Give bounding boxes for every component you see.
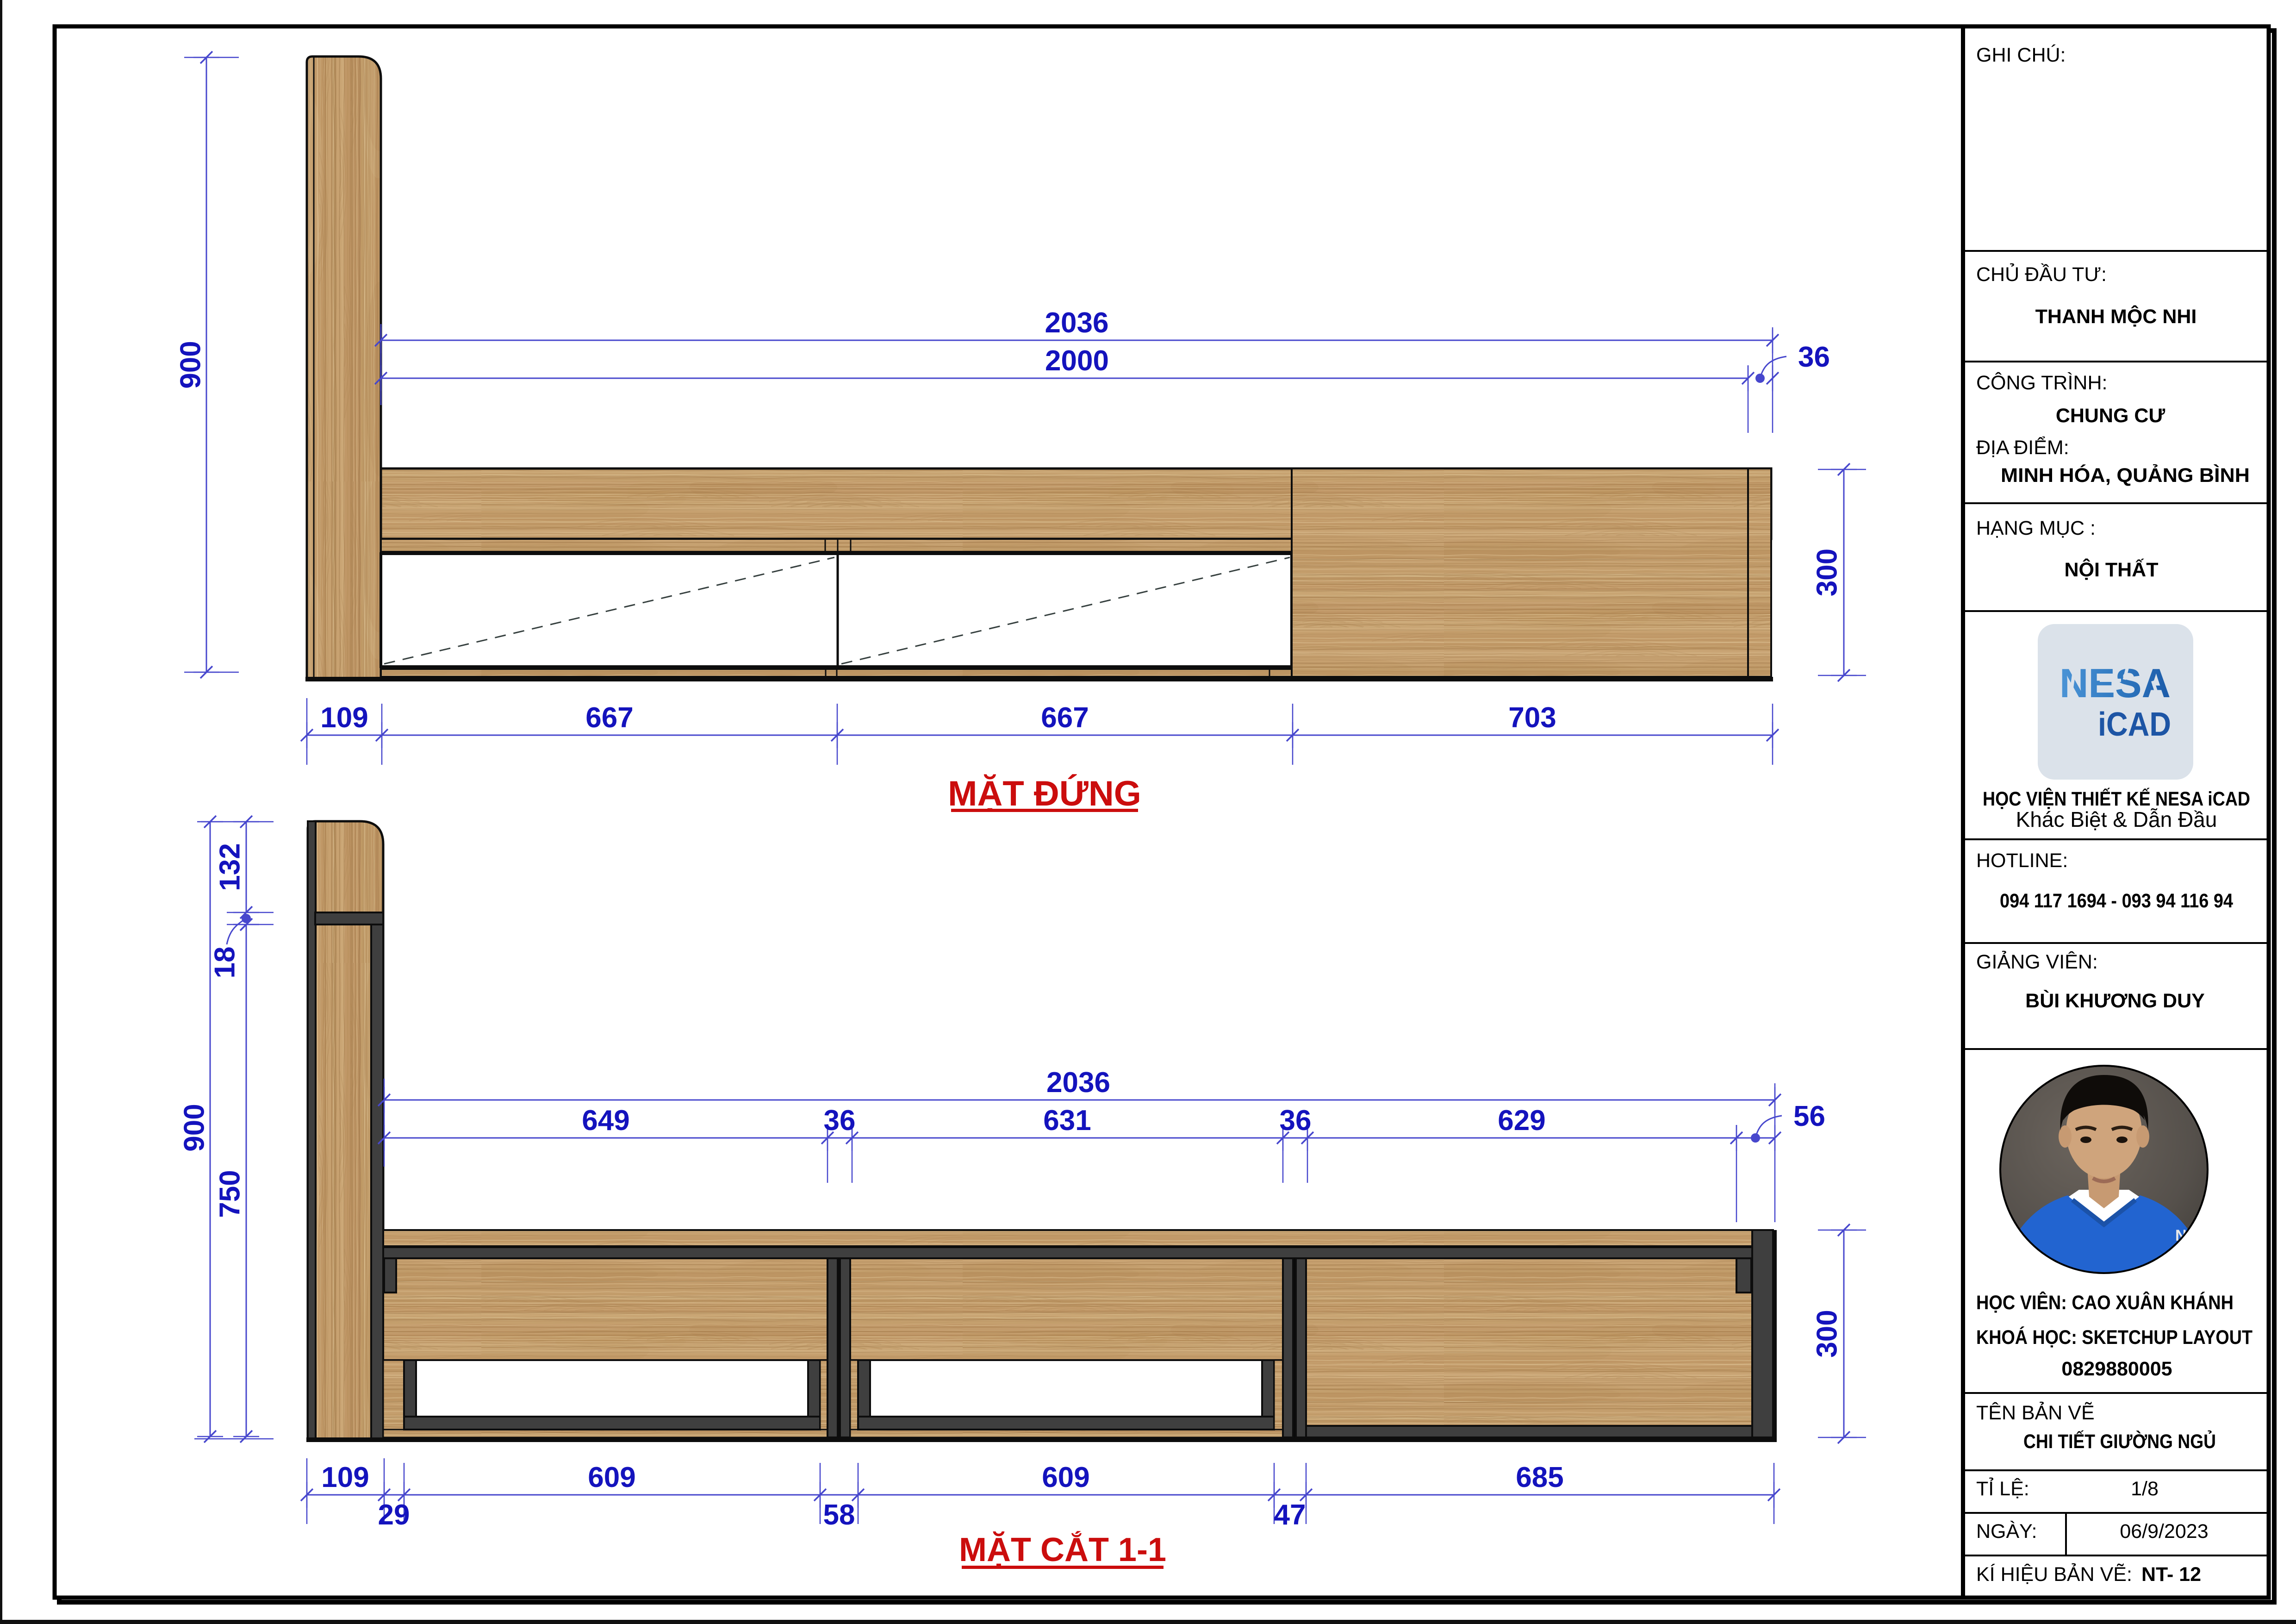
svg-text:132: 132 [214,843,246,891]
svg-text:649: 649 [582,1105,629,1137]
svg-text:36: 36 [1798,341,1830,373]
svg-text:TỈ LỆ:: TỈ LỆ: [1976,1477,2029,1500]
svg-text:TÊN BẢN VẼ: TÊN BẢN VẼ [1976,1401,2095,1424]
svg-text:NT- 12: NT- 12 [2141,1563,2201,1586]
svg-text:667: 667 [585,702,633,734]
svg-text:HỌC VIỆN THIẾT KẾ NESA iCAD: HỌC VIỆN THIẾT KẾ NESA iCAD [1983,787,2250,810]
svg-text:47: 47 [1274,1499,1306,1531]
svg-text:CHUNG CƯ: CHUNG CƯ [2056,405,2165,427]
svg-text:2000: 2000 [1045,345,1109,377]
svg-text:HẠNG MỤC :: HẠNG MỤC : [1976,517,2096,539]
svg-text:300: 300 [1811,1310,1843,1357]
svg-text:MẶT CẮT 1-1: MẶT CẮT 1-1 [959,1531,1166,1568]
svg-text:609: 609 [1042,1462,1089,1493]
svg-text:36: 36 [824,1105,856,1137]
svg-text:NGÀY:: NGÀY: [1976,1520,2037,1543]
svg-text:HỌC VIÊN: CAO XUÂN KHÁNH: HỌC VIÊN: CAO XUÂN KHÁNH [1976,1291,2234,1314]
svg-text:CHI TIẾT GIƯỜNG NGỦ: CHI TIẾT GIƯỜNG NGỦ [2023,1430,2216,1453]
svg-text:631: 631 [1043,1105,1091,1137]
svg-text:58: 58 [823,1499,855,1531]
svg-text:1/8: 1/8 [2131,1478,2159,1500]
svg-text:Khác Biệt & Dẫn Đầu: Khác Biệt & Dẫn Đầu [2016,807,2217,831]
svg-text:THANH MỘC NHI: THANH MỘC NHI [2035,305,2197,328]
svg-text:300: 300 [1811,549,1843,596]
svg-text:094 117 1694 - 093 94 116 94: 094 117 1694 - 093 94 116 94 [2000,890,2233,912]
svg-text:06/9/2023: 06/9/2023 [2120,1520,2208,1543]
svg-text:29: 29 [378,1499,410,1531]
svg-text:56: 56 [1793,1100,1825,1132]
svg-text:CÔNG TRÌNH:: CÔNG TRÌNH: [1976,372,2108,394]
svg-text:ĐỊA ĐIỂM:: ĐỊA ĐIỂM: [1976,436,2069,459]
svg-text:CHỦ ĐẦU TƯ:: CHỦ ĐẦU TƯ: [1976,263,2107,286]
svg-text:900: 900 [179,1104,211,1151]
svg-text:900: 900 [175,341,207,388]
svg-text:BÙI KHƯƠNG DUY: BÙI KHƯƠNG DUY [2025,989,2205,1012]
svg-text:109: 109 [321,1462,369,1493]
svg-text:HOTLINE:: HOTLINE: [1976,849,2068,872]
svg-text:703: 703 [1508,702,1556,734]
svg-text:KHOÁ HỌC: SKETCHUP LAYOUT: KHOÁ HỌC: SKETCHUP LAYOUT [1976,1326,2252,1349]
svg-text:2036: 2036 [1046,1067,1110,1099]
svg-text:GHI CHÚ:: GHI CHÚ: [1976,44,2066,66]
svg-text:750: 750 [214,1170,246,1218]
svg-text:18: 18 [209,947,241,979]
svg-text:MẶT ĐỨNG: MẶT ĐỨNG [948,774,1141,813]
svg-text:GIẢNG VIÊN:: GIẢNG VIÊN: [1976,950,2098,973]
svg-text:685: 685 [1516,1462,1563,1493]
svg-text:KÍ HIỆU BẢN VẼ:: KÍ HIỆU BẢN VẼ: [1976,1563,2132,1586]
svg-text:109: 109 [320,702,368,734]
svg-text:609: 609 [588,1462,635,1493]
svg-text:MINH HÓA, QUẢNG BÌNH: MINH HÓA, QUẢNG BÌNH [2001,464,2250,487]
svg-text:629: 629 [1498,1105,1545,1137]
svg-text:0829880005: 0829880005 [2061,1358,2172,1380]
svg-text:iCAD: iCAD [2098,706,2171,743]
svg-text:36: 36 [1280,1105,1312,1137]
svg-text:667: 667 [1041,702,1089,734]
svg-text:2036: 2036 [1045,307,1109,339]
svg-text:NỘI THẤT: NỘI THẤT [2064,558,2158,581]
